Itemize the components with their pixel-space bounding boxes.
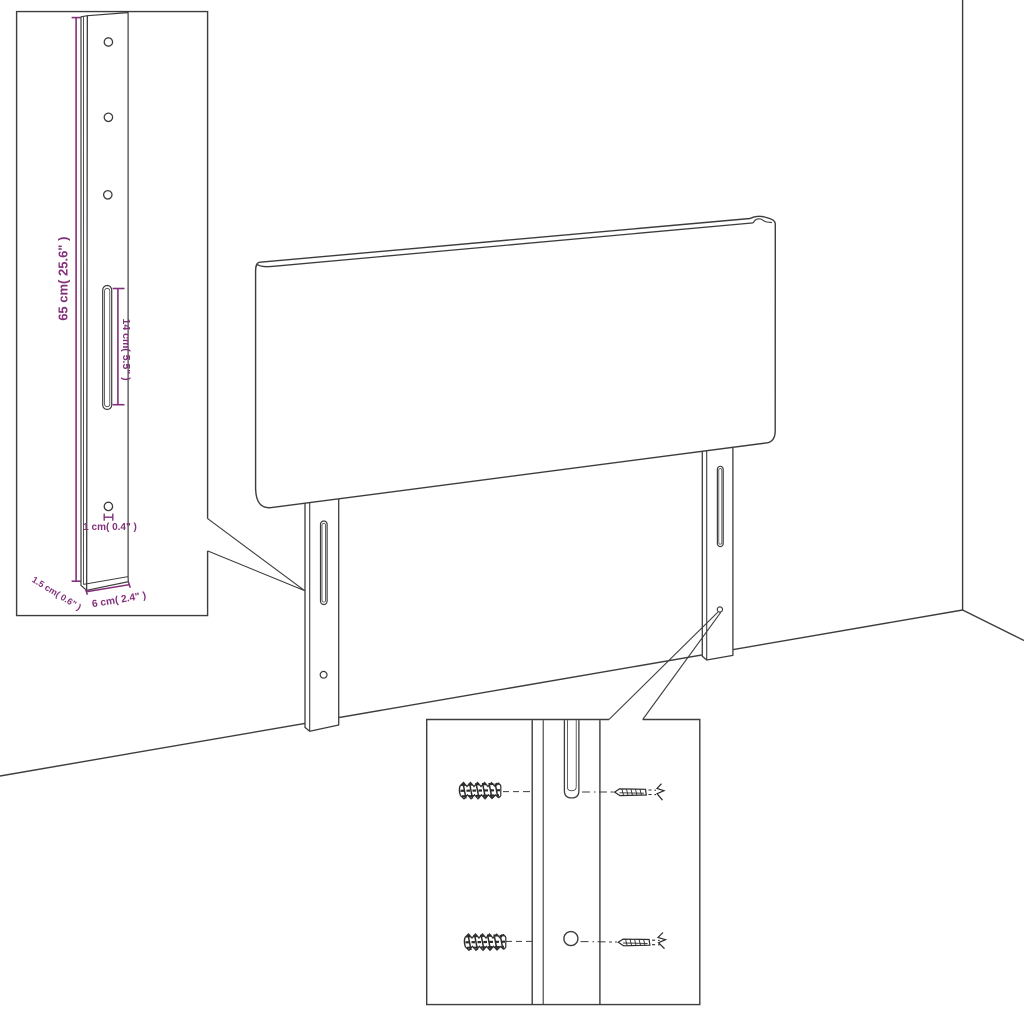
svg-text:1 cm( 0.4" ): 1 cm( 0.4" ) xyxy=(83,522,137,533)
svg-text:65 cm( 25.6" ): 65 cm( 25.6" ) xyxy=(55,237,70,321)
svg-text:14 cm( 5.5" ): 14 cm( 5.5" ) xyxy=(120,319,132,381)
